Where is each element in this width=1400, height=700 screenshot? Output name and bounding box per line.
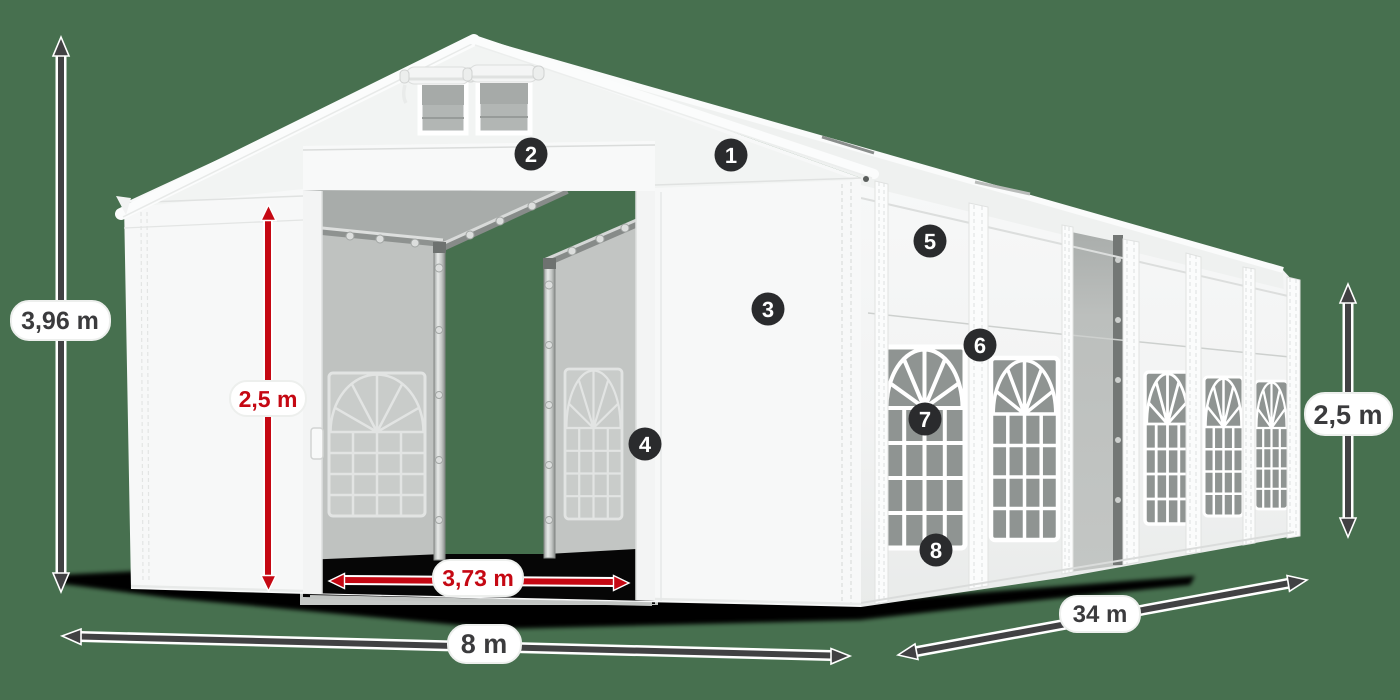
svg-text:7: 7 bbox=[919, 407, 931, 432]
svg-text:2: 2 bbox=[525, 142, 537, 167]
svg-text:6: 6 bbox=[974, 333, 986, 358]
svg-text:34 m: 34 m bbox=[1073, 601, 1128, 628]
svg-text:8 m: 8 m bbox=[461, 629, 508, 659]
svg-text:1: 1 bbox=[725, 143, 737, 168]
svg-text:3: 3 bbox=[762, 297, 774, 322]
svg-text:8: 8 bbox=[930, 538, 942, 563]
svg-text:2,5 m: 2,5 m bbox=[239, 386, 298, 412]
svg-text:2,5 m: 2,5 m bbox=[1313, 400, 1382, 430]
svg-text:3,73 m: 3,73 m bbox=[442, 565, 514, 591]
svg-text:5: 5 bbox=[924, 229, 936, 254]
svg-text:4: 4 bbox=[639, 432, 652, 457]
svg-text:3,96 m: 3,96 m bbox=[21, 307, 99, 335]
